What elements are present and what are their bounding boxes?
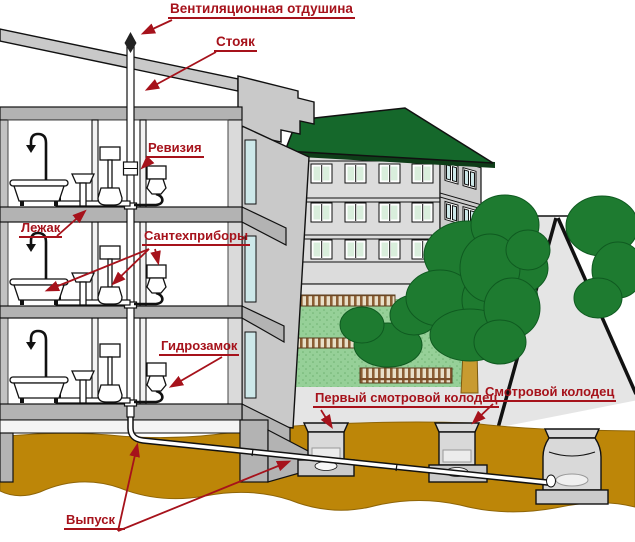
inspection-well-3 (536, 429, 608, 504)
attic-slab (0, 107, 242, 120)
label-first-inspection-well: Первый смотровой колодец (313, 391, 499, 408)
floor-slab (0, 404, 242, 420)
label-vent-opening: Вентиляционная отдушина (168, 2, 355, 19)
sewerage-scheme-diagram: Вентиляционная отдушина Стояк Ревизия Ле… (0, 0, 635, 542)
label-outlet: Выпуск (64, 513, 125, 530)
label-inspection-well: Смотровой колодец (483, 385, 616, 402)
label-water-trap: Гидрозамок (159, 339, 239, 356)
floor-slab (0, 306, 242, 318)
label-horizontal-drain: Лежак (19, 221, 62, 238)
label-riser: Стояк (214, 35, 257, 52)
right-wall (228, 120, 242, 432)
diagram-canvas (0, 0, 635, 542)
label-fixtures: Сантехприборы (142, 229, 250, 246)
left-wall (0, 120, 8, 433)
vent-cap (125, 32, 137, 53)
foundation-strip (0, 420, 242, 433)
fence-upper (295, 295, 395, 306)
foundation-left (0, 433, 13, 482)
fence-lower (360, 368, 452, 383)
well-outlet-stub (547, 475, 556, 487)
revision-fitting (124, 162, 138, 175)
label-revision: Ревизия (146, 141, 204, 158)
